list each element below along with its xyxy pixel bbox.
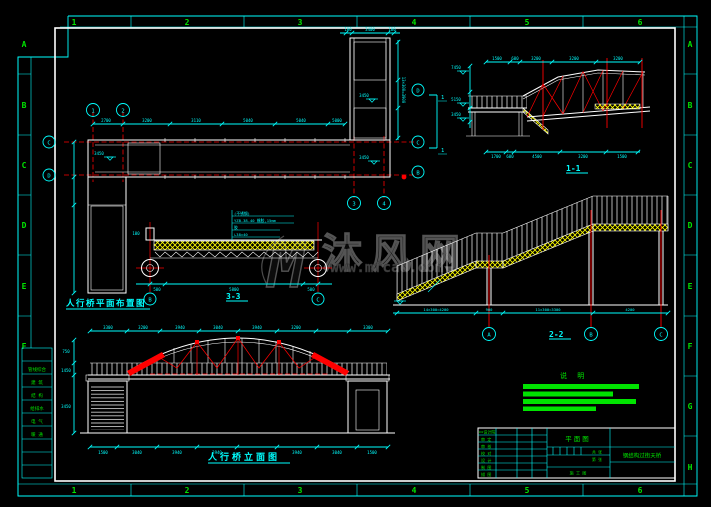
section-label: 1-1 <box>566 164 581 173</box>
dim-text: 3300 <box>103 325 113 330</box>
zone-col-label: 2 <box>185 18 190 27</box>
note-line <box>523 407 596 412</box>
zone-col-label: 1 <box>72 486 77 495</box>
top-stair-tower <box>350 38 390 140</box>
titleblock-row: 设 计 <box>481 457 491 463</box>
elevation-view: 3300 3200 3940 3040 3940 3200 3300 1500 … <box>61 325 395 463</box>
sign-row: 暖 通 <box>31 431 43 438</box>
titleblock-row: 制 图 <box>481 464 491 470</box>
bubble-label: 4 <box>382 202 386 208</box>
railing <box>468 96 527 108</box>
bubble-label: C <box>416 141 419 147</box>
dim-text: 1500 <box>98 450 108 455</box>
railing <box>503 196 593 261</box>
note-line <box>523 399 636 404</box>
section-2-2: 14×300=4200 900 11×300=3300 4200 A B C 2… <box>393 196 670 341</box>
dim-text: 900 <box>486 307 494 312</box>
level-value: 3450 <box>359 155 369 160</box>
bubble-label: D <box>416 89 419 95</box>
note-line <box>523 392 613 397</box>
bubble-label: B <box>416 171 420 177</box>
bubble-label: 1 <box>91 109 94 115</box>
deck-slab-hatch <box>154 241 314 250</box>
dim-text: 1500 <box>617 154 627 159</box>
zone-row-label: A <box>22 40 27 49</box>
deck-outline <box>88 140 390 177</box>
zone-row-label: C <box>22 161 27 170</box>
sign-row: 结 构 <box>31 392 43 399</box>
bubble-label: 3 <box>352 202 355 208</box>
bubble-label: A <box>487 333 491 339</box>
dim-text: 2700 <box>101 118 111 123</box>
grid-bubble: 1 2 3 4 C D D C B <box>43 84 424 210</box>
zone-col-label: 3 <box>298 18 303 27</box>
dim-text: 1700 <box>491 154 501 159</box>
bubble-label: C <box>47 141 50 147</box>
dim-text: 3200 <box>569 56 579 61</box>
notes-title: 说 明 <box>560 371 587 380</box>
dim-text: 500 <box>307 287 315 292</box>
sign-row: 电 气 <box>31 418 43 425</box>
dim-text: 4200 <box>625 307 635 312</box>
dim-text: 3940 <box>252 325 262 330</box>
dim-text: 3400 <box>365 27 375 32</box>
dim-text: 3300 <box>363 325 373 330</box>
titleblock-cell: 第 张 <box>592 457 602 462</box>
dim-text: 3040 <box>132 450 142 455</box>
titleblock-cell: 施 工 图 <box>570 470 587 476</box>
signature-table: 管线综合 建 筑 结 构 给排水 电 气 暖 通 <box>22 348 52 478</box>
dim-text: 100 <box>344 27 352 32</box>
dim-text: 3450 <box>61 404 71 409</box>
leader-note: YZB-38-40 橡胶,15mm <box>234 218 277 223</box>
zone-row-label: C <box>688 161 693 170</box>
zone-row-label: B <box>688 101 693 110</box>
note-line <box>523 384 639 389</box>
level-value: 7450 <box>451 65 461 70</box>
zone-row-label: F <box>688 342 693 351</box>
project-name: 钢结构过街天桥 <box>623 452 662 460</box>
dim-text: 3200 <box>613 56 623 61</box>
bubble-label: B <box>589 333 593 339</box>
bubble-label: C <box>659 333 662 339</box>
deck-stair-flight <box>128 143 160 174</box>
section-cut-label: 1 <box>441 148 444 154</box>
dim-text: 3200 <box>138 325 148 330</box>
notes-block: 说 明 <box>523 371 639 411</box>
zone-row-label: A <box>688 40 693 49</box>
titleblock-row: 审 核 <box>481 443 491 449</box>
zone-col-label: 1 <box>72 18 77 27</box>
titleblock-row: 审 定 <box>481 436 491 442</box>
dim-text: 3110 <box>191 118 201 123</box>
bubble-label: D <box>47 174 50 180</box>
zone-col-label: 5 <box>525 18 530 27</box>
section-label: 3-3 <box>226 292 241 301</box>
dim-text: 1500 <box>492 56 502 61</box>
dim-text: 100 <box>132 231 140 236</box>
leader-note: (不锈钢) <box>234 211 250 216</box>
dim-text: 3940 <box>172 450 182 455</box>
zone-row-label: D <box>688 221 693 230</box>
deck-band <box>593 224 668 231</box>
titleblock-header: ××设计院 <box>479 429 496 435</box>
zone-col-label: 5 <box>525 486 530 495</box>
level-value: 5150 <box>451 97 461 102</box>
left-stair-tower <box>88 177 126 293</box>
bubble-label: B <box>148 298 152 304</box>
dim-text: 3040 <box>213 325 223 330</box>
stair-stringer <box>523 108 548 134</box>
dim-text: 100 <box>388 27 396 32</box>
dim-text: 750 <box>62 349 70 354</box>
zone-row-label: H <box>688 463 693 472</box>
section-1-1: 1500 600 3200 3200 3200 7450 5150 3450 1… <box>451 56 650 173</box>
dim-text: 5040 <box>243 118 253 123</box>
zone-col-label: 2 <box>185 486 190 495</box>
dim-text: 500 <box>153 287 161 292</box>
zone-row-label: G <box>688 402 693 411</box>
red-marker-dot <box>402 175 407 180</box>
leader-note: ∟38×40 <box>234 232 248 237</box>
dim-text: 3200 <box>578 154 588 159</box>
dim-text: 3040 <box>332 450 342 455</box>
titleblock-cell: 共 张 <box>592 450 602 455</box>
titleblock-row: 描 图 <box>481 471 491 477</box>
dim-text: 3940 <box>292 450 302 455</box>
dim-text: 3200 <box>531 56 541 61</box>
zone-row-label: E <box>688 282 693 291</box>
dim-text: 3200 <box>291 325 301 330</box>
level-value: 3450 <box>359 93 369 98</box>
titleblock-row: 校 对 <box>481 450 491 456</box>
elevation-caption: 人行桥立面图 <box>207 451 280 463</box>
level-value: 3450 <box>94 151 104 156</box>
bubble-label: 2 <box>121 109 124 115</box>
bubble-label: C <box>316 298 319 304</box>
drawing-canvas: M 沐风网 www.mfcad.com 1 2 3 4 5 6 1 2 3 4 … <box>0 0 711 507</box>
dim-text: 600 <box>511 56 519 61</box>
title-block: ××设计院 审 定 审 核 校 对 设 计 制 图 描 图 平面图 共 张 第 … <box>478 428 675 478</box>
zone-row-label: B <box>22 101 27 110</box>
dim-text: 3200 <box>142 118 152 123</box>
dim-text: 5040 <box>296 118 306 123</box>
zone-col-label: 4 <box>412 486 417 495</box>
zone-row-label: D <box>22 221 27 230</box>
drawing-title: 平面图 <box>565 435 591 443</box>
cad-sheet: M 沐风网 www.mfcad.com 1 2 3 4 5 6 1 2 3 4 … <box>0 0 711 507</box>
dim-text: 13×300=3900 <box>401 77 406 104</box>
section-cut-label: 1 <box>441 95 444 101</box>
sign-row: 建 筑 <box>31 379 43 386</box>
plan-caption: 人行桥平面布置图 <box>66 298 146 309</box>
leader-note: 胶 <box>234 225 238 230</box>
sign-row: 给排水 <box>30 405 44 412</box>
zone-col-label: 4 <box>412 18 417 27</box>
level-value: 3450 <box>451 112 461 117</box>
zone-col-label: 6 <box>638 486 643 495</box>
sign-row: 管线综合 <box>28 366 46 373</box>
railing <box>593 196 668 224</box>
dim-text: 3940 <box>175 325 185 330</box>
zone-col-label: 6 <box>638 18 643 27</box>
dim-text: 1450 <box>61 368 71 373</box>
right-tower <box>348 381 387 433</box>
dim-text: 11×300=3300 <box>535 307 561 312</box>
zone-row-label: E <box>22 282 27 291</box>
dim-text: 5000 <box>332 118 342 123</box>
dim-text: 1500 <box>367 450 377 455</box>
section-label: 2-2 <box>549 330 564 339</box>
section-cut-mark: 1 1 <box>429 95 447 154</box>
dim-text: 4500 <box>532 154 542 159</box>
zone-col-label: 3 <box>298 486 303 495</box>
dim-text: 14×300=4200 <box>423 307 449 312</box>
zone-row-label: F <box>22 342 27 351</box>
dim-text: 600 <box>506 154 514 159</box>
